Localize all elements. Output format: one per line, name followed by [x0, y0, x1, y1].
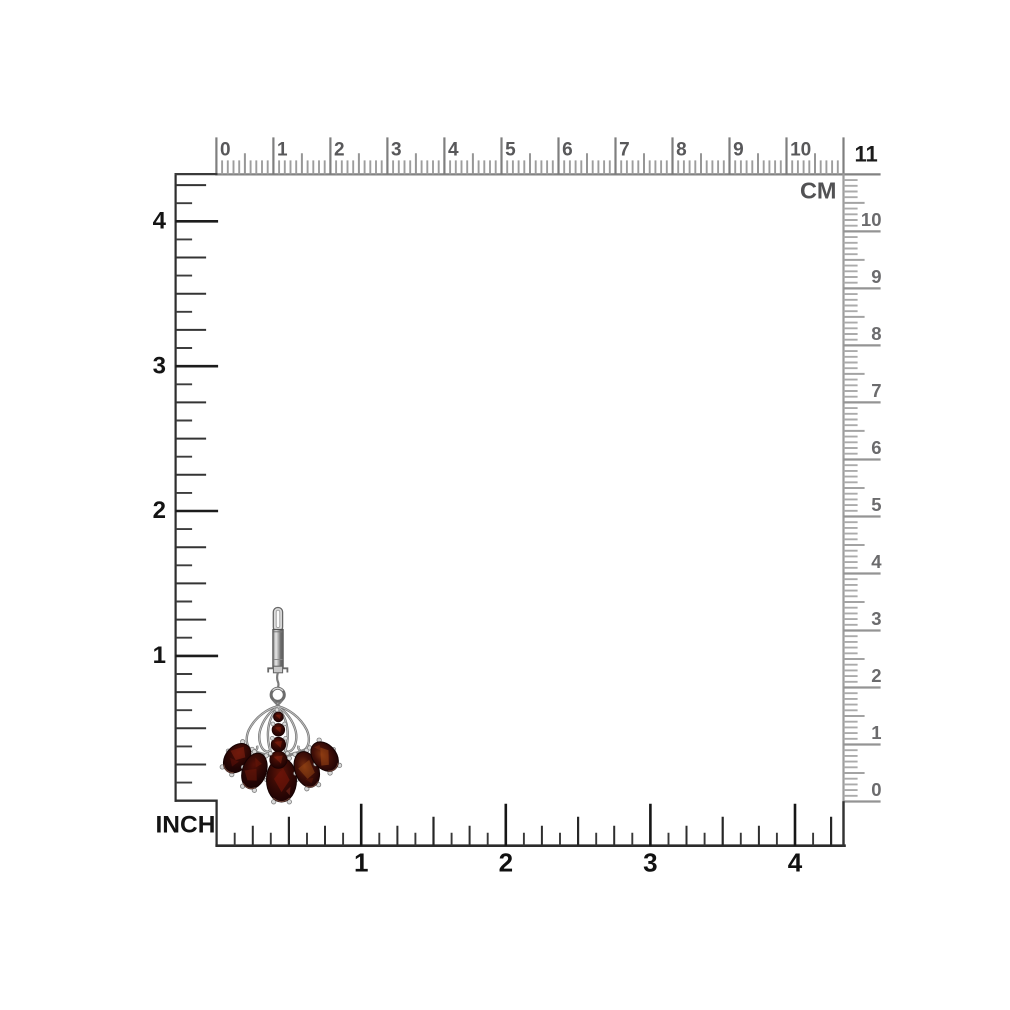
- svg-text:4: 4: [448, 139, 459, 160]
- svg-text:0: 0: [871, 779, 881, 800]
- svg-text:1: 1: [153, 642, 166, 669]
- svg-text:4: 4: [153, 208, 167, 235]
- svg-text:10: 10: [861, 209, 882, 230]
- svg-text:8: 8: [871, 323, 881, 344]
- svg-text:2: 2: [499, 847, 513, 877]
- svg-text:8: 8: [676, 139, 687, 160]
- svg-text:11: 11: [855, 141, 878, 166]
- svg-text:3: 3: [871, 608, 881, 629]
- svg-text:INCH: INCH: [156, 812, 216, 839]
- svg-text:4: 4: [788, 847, 803, 877]
- svg-text:6: 6: [871, 437, 881, 458]
- svg-text:9: 9: [871, 266, 881, 287]
- svg-text:3: 3: [153, 352, 166, 379]
- svg-text:3: 3: [391, 139, 402, 160]
- svg-text:2: 2: [334, 139, 345, 160]
- svg-text:3: 3: [643, 847, 657, 877]
- svg-text:5: 5: [871, 494, 881, 515]
- svg-text:2: 2: [871, 665, 881, 686]
- svg-text:7: 7: [619, 139, 630, 160]
- svg-text:5: 5: [505, 139, 516, 160]
- svg-text:1: 1: [871, 722, 881, 743]
- svg-text:0: 0: [220, 139, 231, 160]
- svg-text:4: 4: [871, 551, 882, 572]
- svg-text:10: 10: [790, 139, 811, 160]
- svg-text:1: 1: [277, 139, 288, 160]
- svg-text:7: 7: [871, 380, 881, 401]
- svg-text:2: 2: [153, 497, 166, 524]
- svg-text:6: 6: [562, 139, 573, 160]
- svg-text:9: 9: [733, 139, 744, 160]
- svg-text:1: 1: [354, 847, 368, 877]
- svg-text:CM: CM: [800, 177, 837, 203]
